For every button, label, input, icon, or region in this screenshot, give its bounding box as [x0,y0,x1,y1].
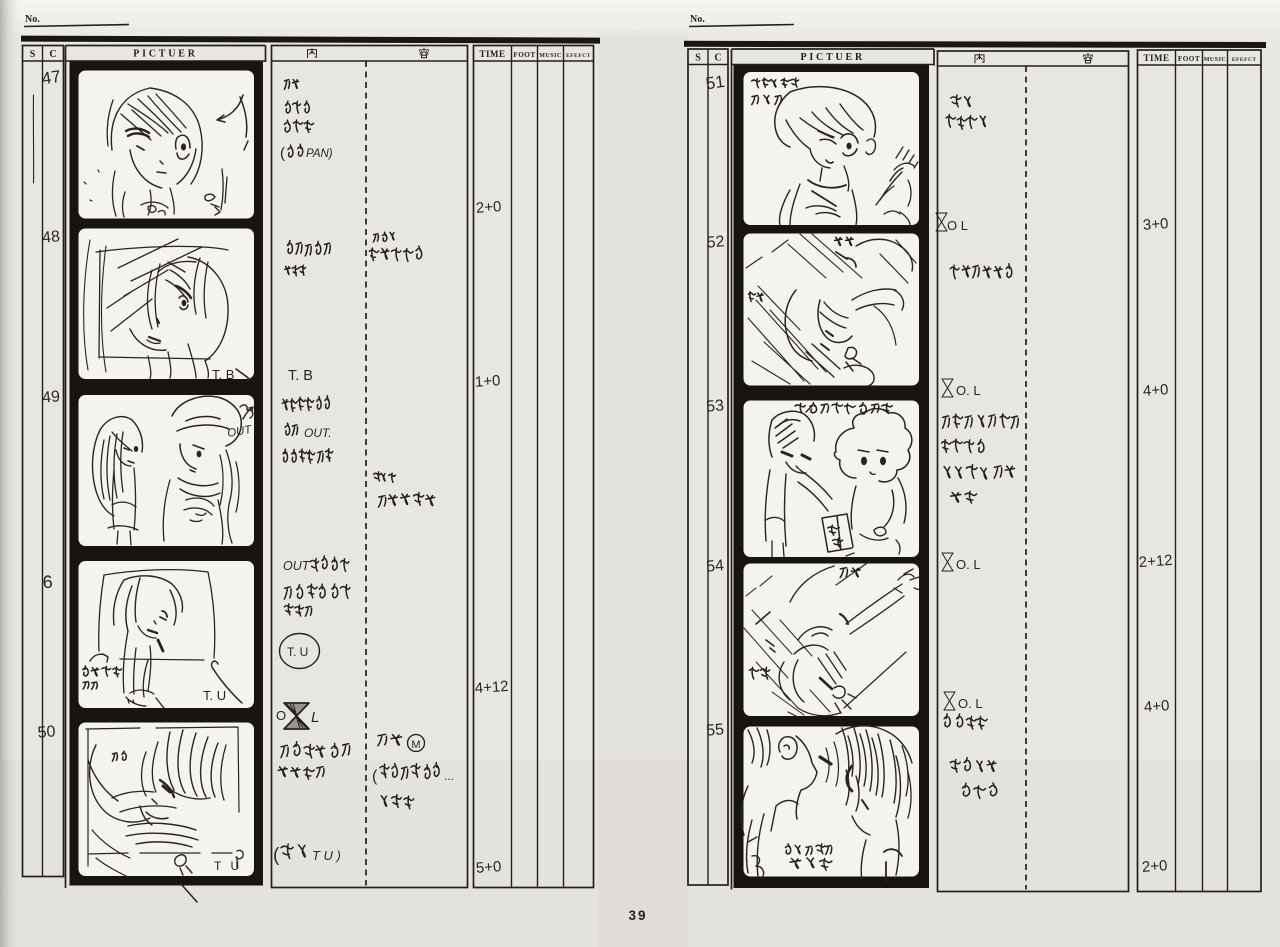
svg-text:No.: No. [25,14,40,25]
svg-text:51: 51 [705,72,726,93]
svg-text:2+12: 2+12 [1138,552,1173,571]
svg-text:T. B: T. B [288,368,313,384]
svg-text:39: 39 [628,908,647,923]
svg-text:48: 48 [42,228,61,246]
svg-text:FOOT: FOOT [513,51,535,59]
svg-text:6: 6 [42,572,53,592]
svg-text:47: 47 [41,67,62,88]
svg-text:O. L: O. L [956,383,981,398]
svg-text:OUT.: OUT. [304,426,332,440]
svg-text:T. B: T. B [212,367,234,382]
svg-text:52: 52 [706,233,725,251]
svg-text:O. L: O. L [958,696,983,711]
svg-text:5+0: 5+0 [475,858,502,877]
svg-text:PICTUER: PICTUER [133,49,198,60]
svg-text:L: L [311,709,319,726]
svg-text:T. U: T. U [203,688,226,703]
svg-text:No.: No. [690,14,705,25]
svg-text:OUT: OUT [283,559,311,573]
svg-text:S: S [30,49,36,60]
svg-text:50: 50 [37,723,56,741]
svg-text:MUSIC: MUSIC [1204,57,1227,63]
svg-text:(: ( [372,768,378,785]
svg-text:3+0: 3+0 [1142,215,1169,234]
svg-text:49: 49 [42,388,61,406]
svg-text:(: ( [280,145,285,162]
svg-text:2+0: 2+0 [1141,857,1168,876]
svg-text:PAN): PAN) [306,148,333,160]
svg-text:O: O [276,708,286,723]
svg-text:PICTUER: PICTUER [800,52,865,63]
svg-text:O L: O L [947,218,968,233]
svg-text:M: M [411,739,420,751]
svg-text:TIME: TIME [1143,53,1169,63]
svg-text:53: 53 [706,397,725,415]
svg-text:EFEFCT: EFEFCT [1232,57,1257,63]
svg-text:T U: T U [214,859,242,873]
svg-text:C: C [49,49,56,60]
svg-text:S: S [695,53,701,64]
svg-text:2+0: 2+0 [475,198,502,217]
svg-text:1+0: 1+0 [474,372,501,391]
svg-text:...: ... [444,769,454,783]
svg-text:4+12: 4+12 [474,678,509,697]
svg-text:4+0: 4+0 [1142,381,1169,400]
svg-text:(: ( [273,845,280,866]
svg-text:T U ): T U ) [312,848,341,863]
svg-text:TIME: TIME [479,49,505,59]
svg-text:55: 55 [706,721,725,739]
svg-text:T. U: T. U [287,645,308,659]
svg-text:O. L: O. L [956,557,981,572]
svg-text:4+0: 4+0 [1143,697,1170,716]
svg-text:54: 54 [706,557,725,575]
svg-text:C: C [714,53,721,64]
svg-text:EFEFCT: EFEFCT [566,53,591,59]
svg-text:FOOT: FOOT [1178,55,1200,63]
svg-text:MUSIC: MUSIC [539,53,562,59]
